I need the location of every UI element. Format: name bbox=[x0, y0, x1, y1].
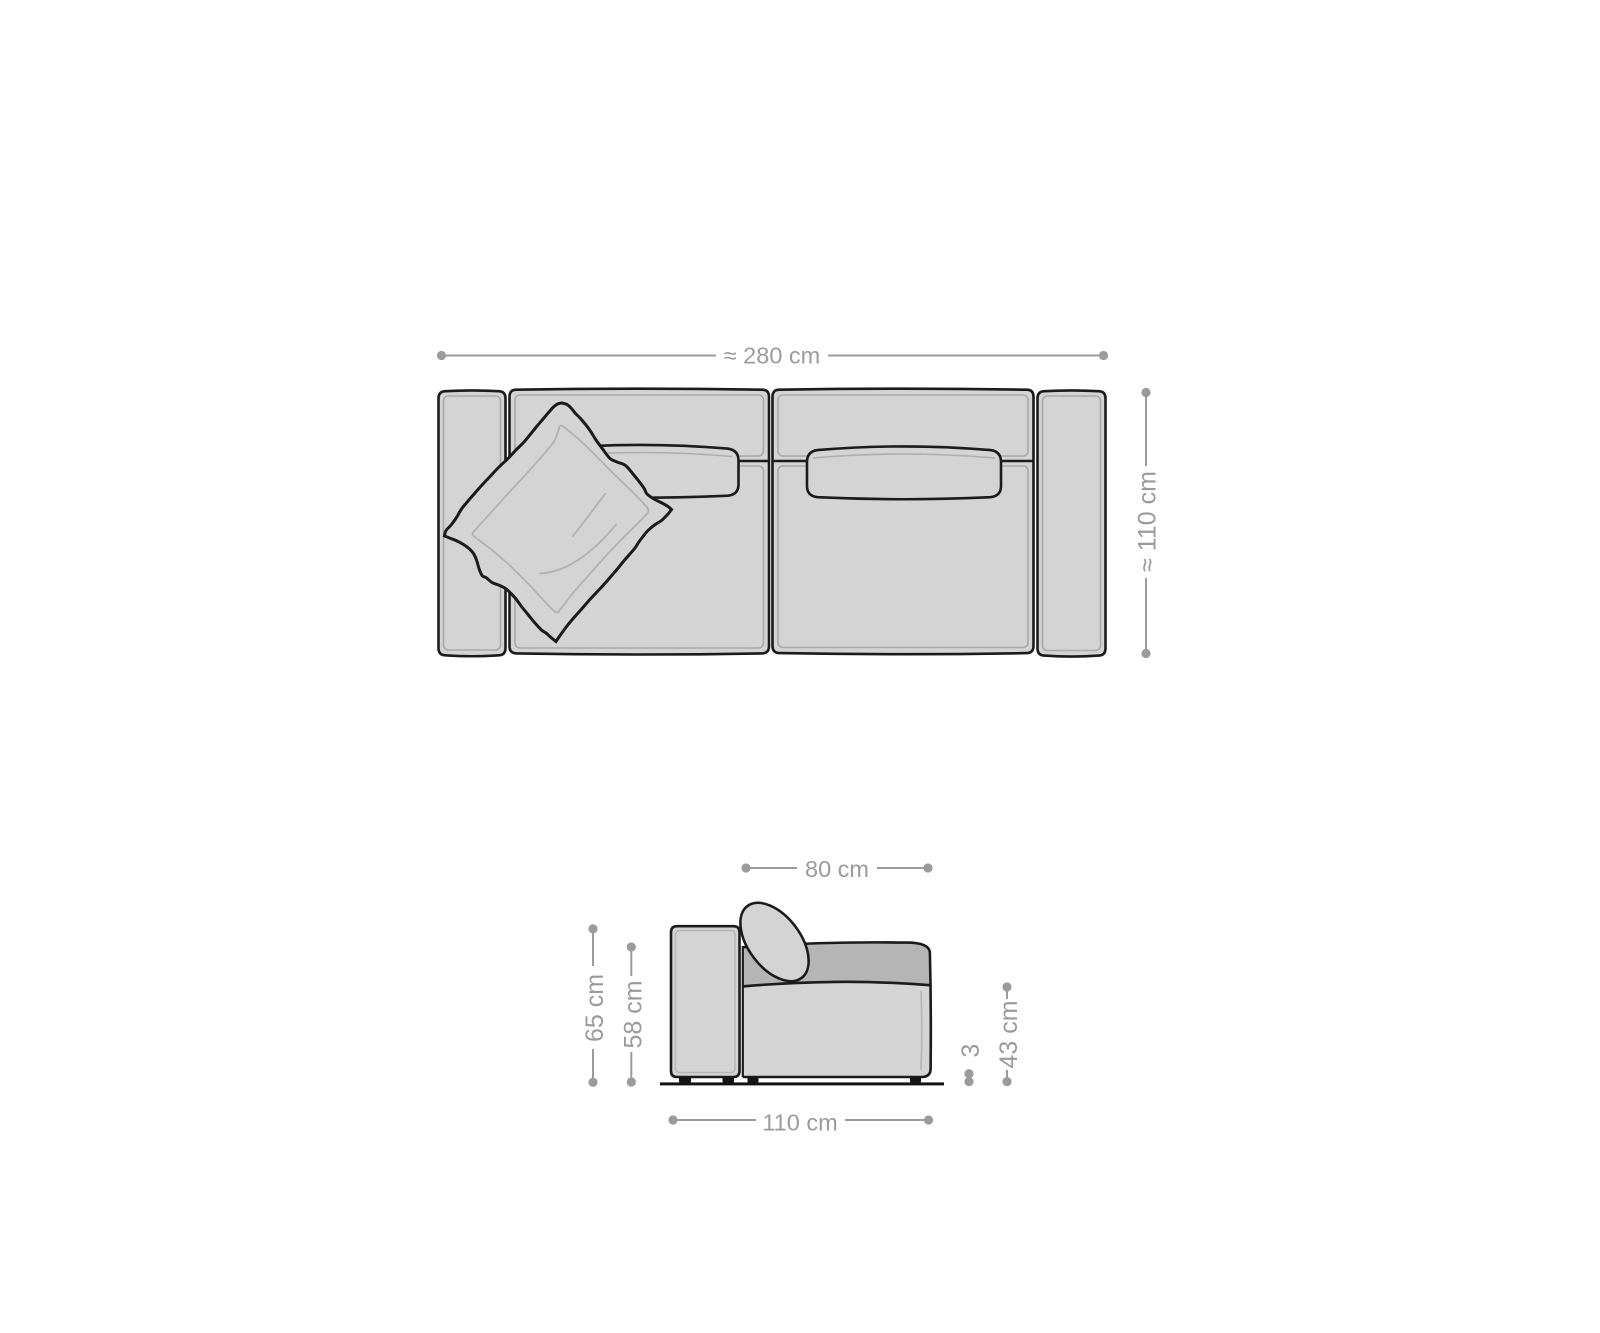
svg-text:80 cm: 80 cm bbox=[805, 856, 869, 882]
svg-text:43 cm: 43 cm bbox=[995, 1000, 1023, 1068]
svg-text:65 cm: 65 cm bbox=[581, 974, 609, 1042]
svg-text:≈ 280 cm: ≈ 280 cm bbox=[724, 343, 821, 369]
svg-text:≈ 110 cm: ≈ 110 cm bbox=[1134, 471, 1162, 572]
svg-text:110 cm: 110 cm bbox=[762, 1110, 837, 1136]
svg-text:58 cm: 58 cm bbox=[619, 980, 647, 1048]
svg-text:3: 3 bbox=[957, 1044, 985, 1058]
